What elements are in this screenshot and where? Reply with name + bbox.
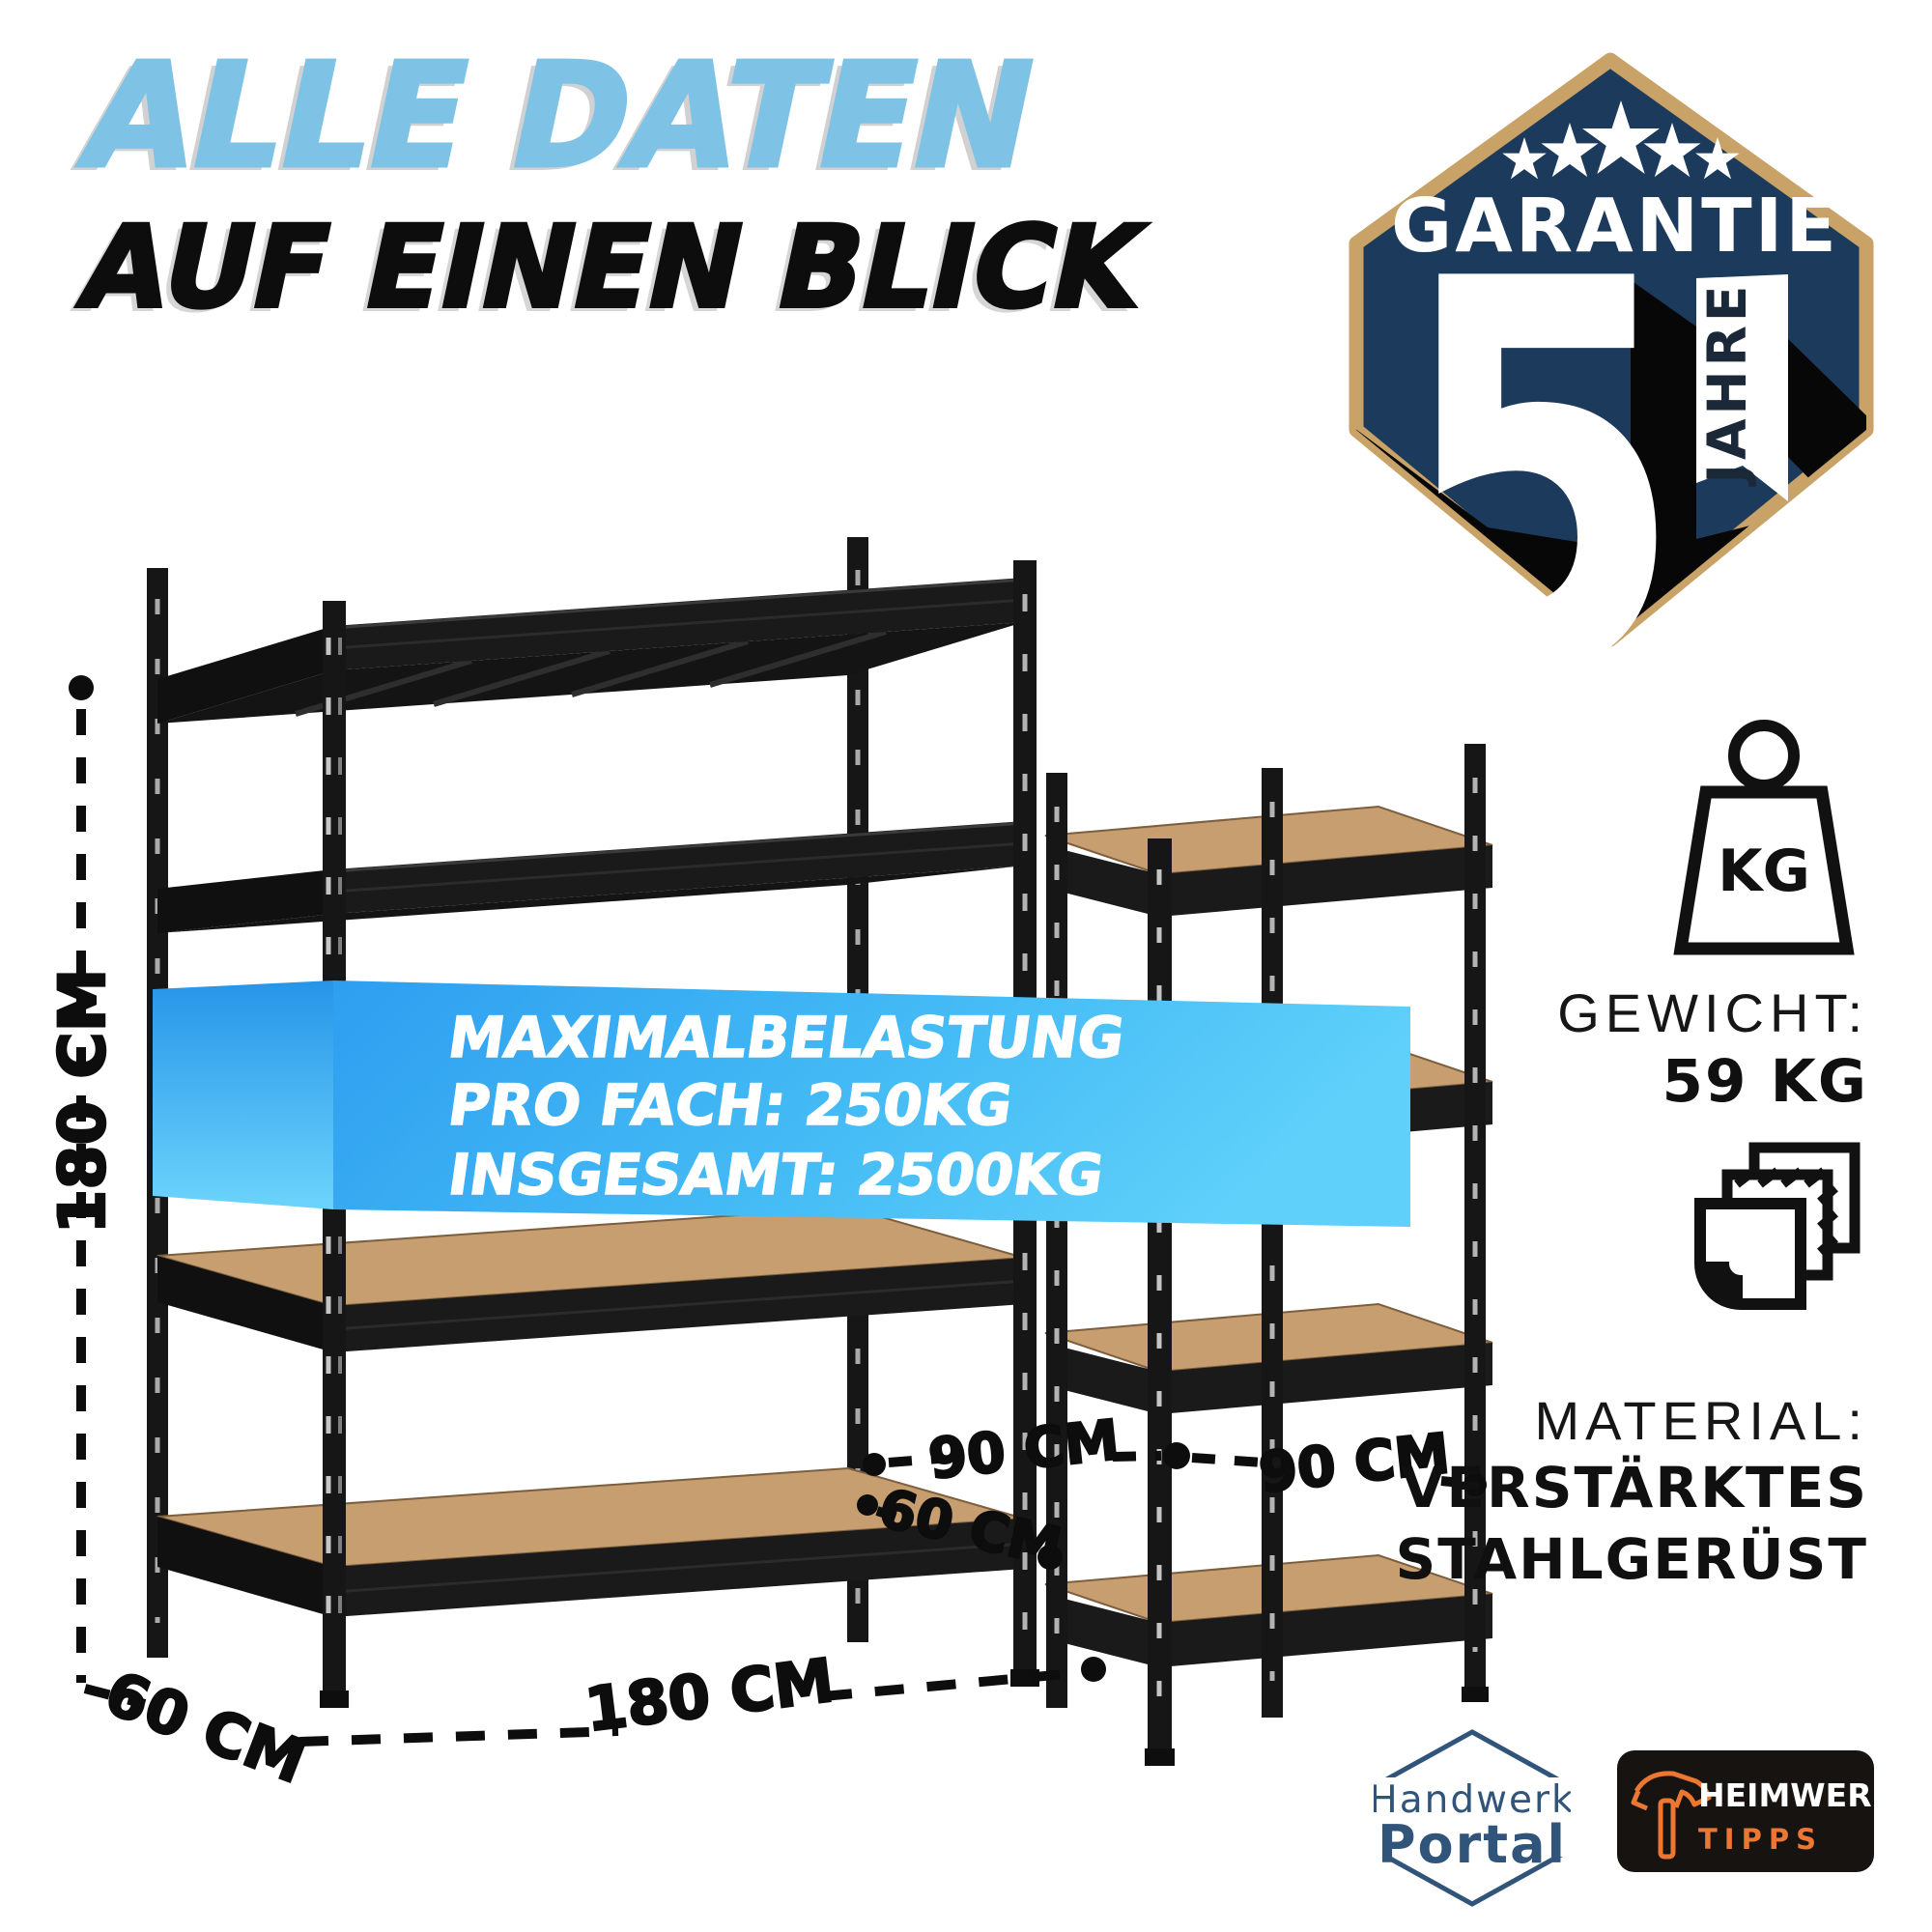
handwerk-portal-logo: Handwerk Portal [1374,1727,1571,1909]
material-label: MATERIAL: [1535,1389,1868,1452]
weight-icon: KG [1667,717,1861,963]
weight-label: GEWICHT: [1557,981,1868,1044]
weight-icon-text: KG [1718,838,1810,905]
weight-value: 59 KG [1662,1047,1868,1117]
dimension-dot [1163,1442,1190,1469]
badge-ribbon-text: JAHRE [1696,282,1758,488]
depth-dimension-label: 60 CM [96,1657,315,1797]
heimwerker-logo-line1: HEIMWERKER [1698,1776,1874,1814]
banner-line-2: PRO FACH: 250KG [444,1072,1016,1138]
load-banner: MAXIMALBELASTUNG PRO FACH: 250KG INSGESA… [153,980,1410,1227]
heimwerker-tipps-logo: HEIMWERKER TIPPS [1617,1750,1874,1874]
height-dimension-label: 180 CM [45,969,120,1235]
material-icon [1690,1142,1864,1364]
dimension-dot [1081,1657,1106,1682]
dimension-dot [863,1453,886,1476]
banner-line-1: MAXIMALBELASTUNG [444,1005,1128,1070]
shelf-post [1262,768,1283,1718]
badge-number: 5 [1394,168,1685,792]
width-dimension-line [299,1731,618,1742]
guarantee-badge: GARANTIE JAHRE 5 [1350,60,1874,792]
corner-shelving-unit [1045,744,1492,1766]
width-dimension-label: 180 CM [582,1645,838,1746]
bay-left-dimension-label: 90 CM [925,1408,1122,1492]
infographic-page: ALLE DATEN AUF EINEN BLICK [0,0,1932,1932]
material-value-line1: VERSTÄRKTES [1402,1455,1868,1520]
dimension-dot [69,675,94,700]
heimwerker-logo-line2: TIPPS [1698,1823,1823,1856]
shelf-post [1148,838,1172,1750]
shelf-diagram: GARANTIE JAHRE 5 [0,0,1932,1932]
handwerk-logo-line2: Portal [1378,1814,1567,1875]
banner-side-face [153,980,333,1209]
material-value-line2: STAHLGERÜST [1395,1526,1868,1592]
dimension-dot [857,1494,878,1516]
banner-line-3: INSGESAMT: 2500KG [444,1142,1108,1207]
